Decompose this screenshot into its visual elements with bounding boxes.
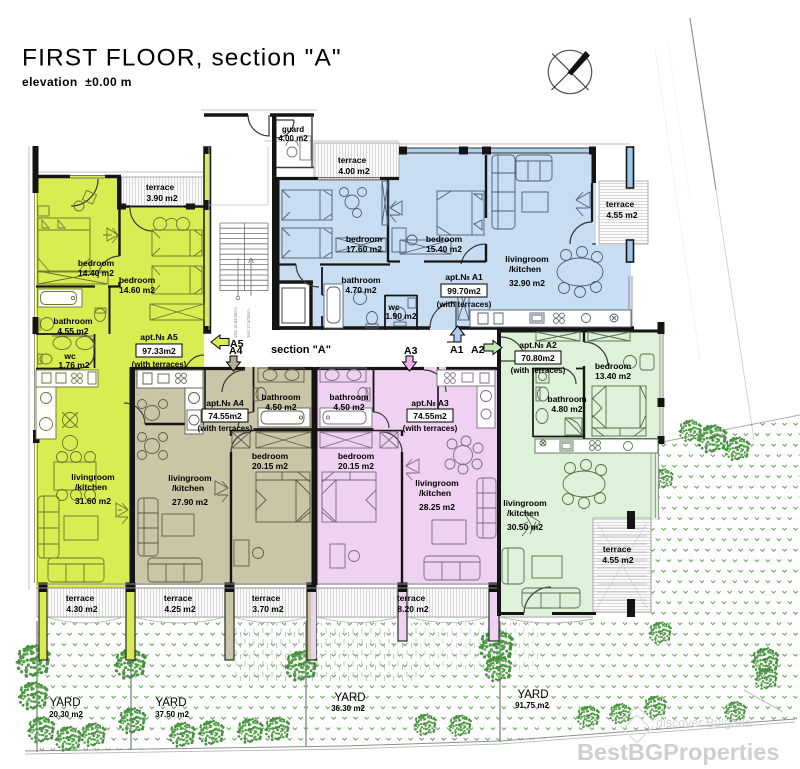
svg-text:17.60 m2: 17.60 m2 bbox=[346, 244, 382, 254]
svg-text:4.55 m2: 4.55 m2 bbox=[602, 555, 633, 565]
svg-text:terrace: terrace bbox=[338, 155, 367, 165]
svg-text:FIRST FLOOR, section "A": FIRST FLOOR, section "A" bbox=[22, 45, 342, 72]
svg-text:91.75 m2: 91.75 m2 bbox=[515, 701, 549, 710]
svg-text:YARD: YARD bbox=[517, 689, 548, 701]
svg-text:(with terraces): (with terraces) bbox=[511, 366, 566, 375]
svg-text:bedroom: bedroom bbox=[119, 275, 156, 285]
svg-text:bedroom: bedroom bbox=[252, 451, 289, 461]
svg-text:bathroom: bathroom bbox=[53, 316, 93, 326]
svg-text:/kitchen: /kitchen bbox=[172, 483, 204, 493]
svg-text:apt.№ A3: apt.№ A3 bbox=[411, 398, 449, 408]
svg-text:20.15 m2: 20.15 m2 bbox=[252, 461, 288, 471]
svg-text:4.80 m2: 4.80 m2 bbox=[551, 404, 582, 414]
svg-text:8.20 m2: 8.20 m2 bbox=[397, 604, 428, 614]
svg-text:BestBGProperties: BestBGProperties bbox=[577, 739, 779, 765]
svg-text:70.80m2: 70.80m2 bbox=[521, 353, 555, 363]
svg-text:14.60 m2: 14.60 m2 bbox=[119, 285, 155, 295]
svg-text:4.70 m2: 4.70 m2 bbox=[345, 285, 376, 295]
svg-text:apt.№ A4: apt.№ A4 bbox=[206, 398, 244, 408]
svg-text:A3: A3 bbox=[404, 345, 418, 357]
svg-text:bathroom: bathroom bbox=[547, 394, 587, 404]
svg-text:97.33m2: 97.33m2 bbox=[142, 346, 176, 356]
svg-text:(with terraces): (with terraces) bbox=[198, 424, 253, 433]
svg-text:livingroom: livingroom bbox=[503, 498, 547, 508]
svg-text:terrace: terrace bbox=[603, 544, 632, 554]
svg-text:terrace: terrace bbox=[252, 593, 281, 603]
svg-text:32.90 m2: 32.90 m2 bbox=[509, 278, 545, 288]
svg-text:elevation ±0.00 m: elevation ±0.00 m bbox=[22, 75, 132, 89]
svg-text:4.55 m2: 4.55 m2 bbox=[57, 326, 88, 336]
svg-text:99.70m2: 99.70m2 bbox=[447, 286, 481, 296]
svg-text:livingroom: livingroom bbox=[505, 254, 549, 264]
svg-text:13.40 m2: 13.40 m2 bbox=[595, 371, 631, 381]
svg-text:terrace: terrace bbox=[606, 199, 635, 209]
svg-text:livingroom: livingroom bbox=[71, 472, 115, 482]
svg-text:1.90 m2: 1.90 m2 bbox=[385, 311, 416, 321]
svg-text:20.15 m2: 20.15 m2 bbox=[338, 461, 374, 471]
svg-text:16st 17.5/30cm: 16st 17.5/30cm bbox=[246, 309, 251, 338]
svg-text:/kitchen: /kitchen bbox=[75, 482, 107, 492]
svg-text:20.30 m2: 20.30 m2 bbox=[49, 710, 83, 719]
svg-text:livingroom: livingroom bbox=[168, 473, 212, 483]
svg-text:terrace: terrace bbox=[66, 593, 95, 603]
svg-text:(with terraces): (with terraces) bbox=[132, 360, 187, 369]
svg-text:A2: A2 bbox=[471, 344, 485, 356]
svg-text:/kitchen: /kitchen bbox=[509, 264, 541, 274]
svg-text:30.50 m2: 30.50 m2 bbox=[507, 522, 543, 532]
svg-text:terrace: terrace bbox=[146, 182, 175, 192]
svg-text:(with terraces): (with terraces) bbox=[437, 300, 492, 309]
svg-text:4.50 m2: 4.50 m2 bbox=[333, 402, 364, 412]
svg-text:apt.№ A2: apt.№ A2 bbox=[519, 340, 557, 350]
svg-text:4.25 m2: 4.25 m2 bbox=[164, 604, 195, 614]
svg-text:guard: guard bbox=[282, 125, 304, 134]
svg-text:livingroom: livingroom bbox=[415, 478, 459, 488]
svg-text:terrace: terrace bbox=[397, 593, 426, 603]
svg-text:YARD: YARD bbox=[49, 697, 80, 709]
svg-text:terrace: terrace bbox=[164, 593, 193, 603]
svg-text:4.00 m2: 4.00 m2 bbox=[278, 134, 308, 143]
svg-text:4.00 m2: 4.00 m2 bbox=[338, 166, 369, 176]
svg-text:74.55m2: 74.55m2 bbox=[413, 411, 447, 421]
svg-text:bathroom: bathroom bbox=[329, 392, 369, 402]
svg-text:bedroom: bedroom bbox=[346, 234, 383, 244]
svg-text:apt.№ A5: apt.№ A5 bbox=[140, 332, 178, 342]
svg-text:4.30 m2: 4.30 m2 bbox=[66, 604, 97, 614]
svg-text:(with terraces): (with terraces) bbox=[403, 424, 458, 433]
svg-text:apt.№ A1: apt.№ A1 bbox=[445, 272, 483, 282]
svg-text:bedroom: bedroom bbox=[595, 361, 632, 371]
svg-text:15.40 m2: 15.40 m2 bbox=[426, 244, 462, 254]
svg-text:19st 16.84/30cm: 19st 16.84/30cm bbox=[233, 307, 238, 338]
svg-text:bedroom: bedroom bbox=[426, 234, 463, 244]
svg-text:discover Bulgaria: discover Bulgaria bbox=[656, 716, 752, 730]
svg-text:bedroom: bedroom bbox=[78, 258, 115, 268]
svg-text:28.25 m2: 28.25 m2 bbox=[419, 502, 455, 512]
svg-text:YARD: YARD bbox=[334, 692, 365, 704]
svg-text:3.90 m2: 3.90 m2 bbox=[146, 193, 177, 203]
svg-text:A1: A1 bbox=[450, 344, 464, 356]
svg-text:4.50 m2: 4.50 m2 bbox=[265, 402, 296, 412]
svg-text:A4: A4 bbox=[229, 345, 243, 357]
svg-text:27.90 m2: 27.90 m2 bbox=[172, 497, 208, 507]
svg-text:74.55m2: 74.55m2 bbox=[208, 411, 242, 421]
svg-text:bedroom: bedroom bbox=[338, 451, 375, 461]
svg-text:14.40 m2: 14.40 m2 bbox=[78, 268, 114, 278]
svg-text:4.55 m2: 4.55 m2 bbox=[606, 210, 637, 220]
svg-text:36.30 m2: 36.30 m2 bbox=[331, 704, 365, 713]
svg-text:/kitchen: /kitchen bbox=[419, 488, 451, 498]
svg-text:/kitchen: /kitchen bbox=[507, 508, 539, 518]
svg-text:31.60 m2: 31.60 m2 bbox=[75, 496, 111, 506]
svg-text:3.70 m2: 3.70 m2 bbox=[252, 604, 283, 614]
svg-text:37.50 m2: 37.50 m2 bbox=[155, 710, 189, 719]
svg-text:1.76 m2: 1.76 m2 bbox=[58, 360, 89, 370]
svg-text:bathroom: bathroom bbox=[261, 392, 301, 402]
svg-text:YARD: YARD bbox=[155, 697, 186, 709]
svg-text:bathroom: bathroom bbox=[341, 275, 381, 285]
svg-text:section "A": section "A" bbox=[271, 344, 331, 356]
